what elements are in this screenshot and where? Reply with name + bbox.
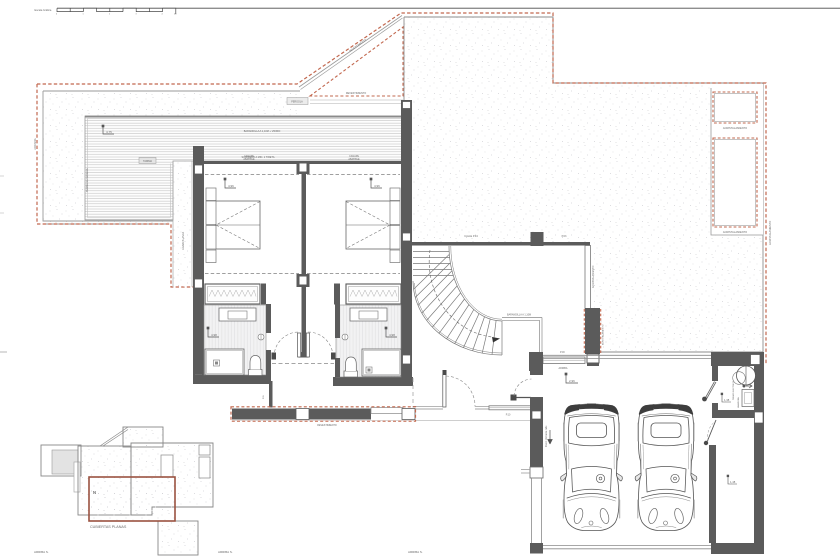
svg-text:Pend. 1% hacia calle: Pend. 1% hacia calle	[546, 425, 548, 447]
svg-text:LIMATESA: LIMATESA	[34, 138, 37, 150]
svg-text:0: 0	[56, 14, 57, 16]
svg-text:ABATIBLE: ABATIBLE	[348, 158, 360, 161]
svg-text:ARRIBA S.: ARRIBA S.	[34, 550, 49, 554]
svg-text:ACRISTALAMIENTO: ACRISTALAMIENTO	[768, 221, 772, 245]
svg-text:LAVADORA: LAVADORA	[737, 397, 740, 408]
svg-text:TARIMA: TARIMA	[143, 160, 152, 163]
svg-text:ARRIBA S.: ARRIBA S.	[218, 550, 233, 554]
svg-text:CALLE P.04: CALLE P.04	[464, 235, 478, 238]
svg-text:PERGOLA: PERGOLA	[291, 101, 303, 104]
svg-text:BARANDILLA A 1,10M: BARANDILLA A 1,10M	[507, 314, 531, 317]
svg-text:TARIMA DE MADERA: TARIMA DE MADERA	[86, 168, 89, 192]
svg-text:1,38: 1,38	[724, 398, 730, 402]
svg-text:CUBIERTAS PLANAS: CUBIERTAS PLANAS	[90, 525, 127, 529]
svg-text:1,48: 1,48	[730, 480, 736, 484]
svg-text:4,75: 4,75	[106, 130, 112, 134]
svg-text:ACRISTALAMIENTO: ACRISTALAMIENTO	[602, 324, 605, 345]
svg-text:ACRISTALAMIENTO: ACRISTALAMIENTO	[723, 126, 747, 130]
svg-text:ABATIBLE: ABATIBLE	[243, 158, 255, 161]
svg-text:BARANDILLA A 1,10M + VIDRIO: BARANDILLA A 1,10M + VIDRIO	[244, 130, 281, 133]
svg-text:Escala Gráfica: Escala Gráfica	[35, 8, 52, 12]
svg-text:4: 4	[162, 14, 163, 16]
svg-text:N: N	[93, 490, 96, 495]
svg-text:P.03: P.03	[562, 235, 567, 238]
svg-text:ACRISTALAMIENTO: ACRISTALAMIENTO	[723, 230, 747, 234]
svg-text:ACRISTALAMIENTO: ACRISTALAMIENTO	[592, 265, 595, 288]
svg-text:4,98: 4,98	[211, 333, 217, 337]
svg-text:5m: 5m	[174, 14, 177, 16]
svg-text:P.05: P.05	[263, 395, 265, 399]
svg-text:1: 1	[83, 14, 84, 16]
svg-text:4,98: 4,98	[389, 333, 395, 337]
svg-text:P.10: P.10	[506, 414, 511, 417]
svg-text:ARRIBA S.: ARRIBA S.	[408, 550, 423, 554]
svg-text:ARRIBA: ARRIBA	[559, 367, 568, 370]
svg-text:4,96: 4,96	[374, 184, 380, 188]
svg-text:GRAVA BLANCA: GRAVA BLANCA	[182, 231, 185, 250]
svg-text:TERMO ELECTRICO: TERMO ELECTRICO	[733, 380, 735, 400]
svg-text:4,96: 4,96	[228, 184, 234, 188]
svg-text:3: 3	[136, 14, 137, 16]
svg-text:REVESTIMIENTO: REVESTIMIENTO	[317, 424, 337, 427]
svg-text:2: 2	[109, 14, 110, 16]
svg-text:REVESTIMIENTO: REVESTIMIENTO	[346, 92, 366, 95]
svg-text:P.03: P.03	[560, 351, 565, 354]
svg-text:2,96: 2,96	[569, 379, 575, 383]
